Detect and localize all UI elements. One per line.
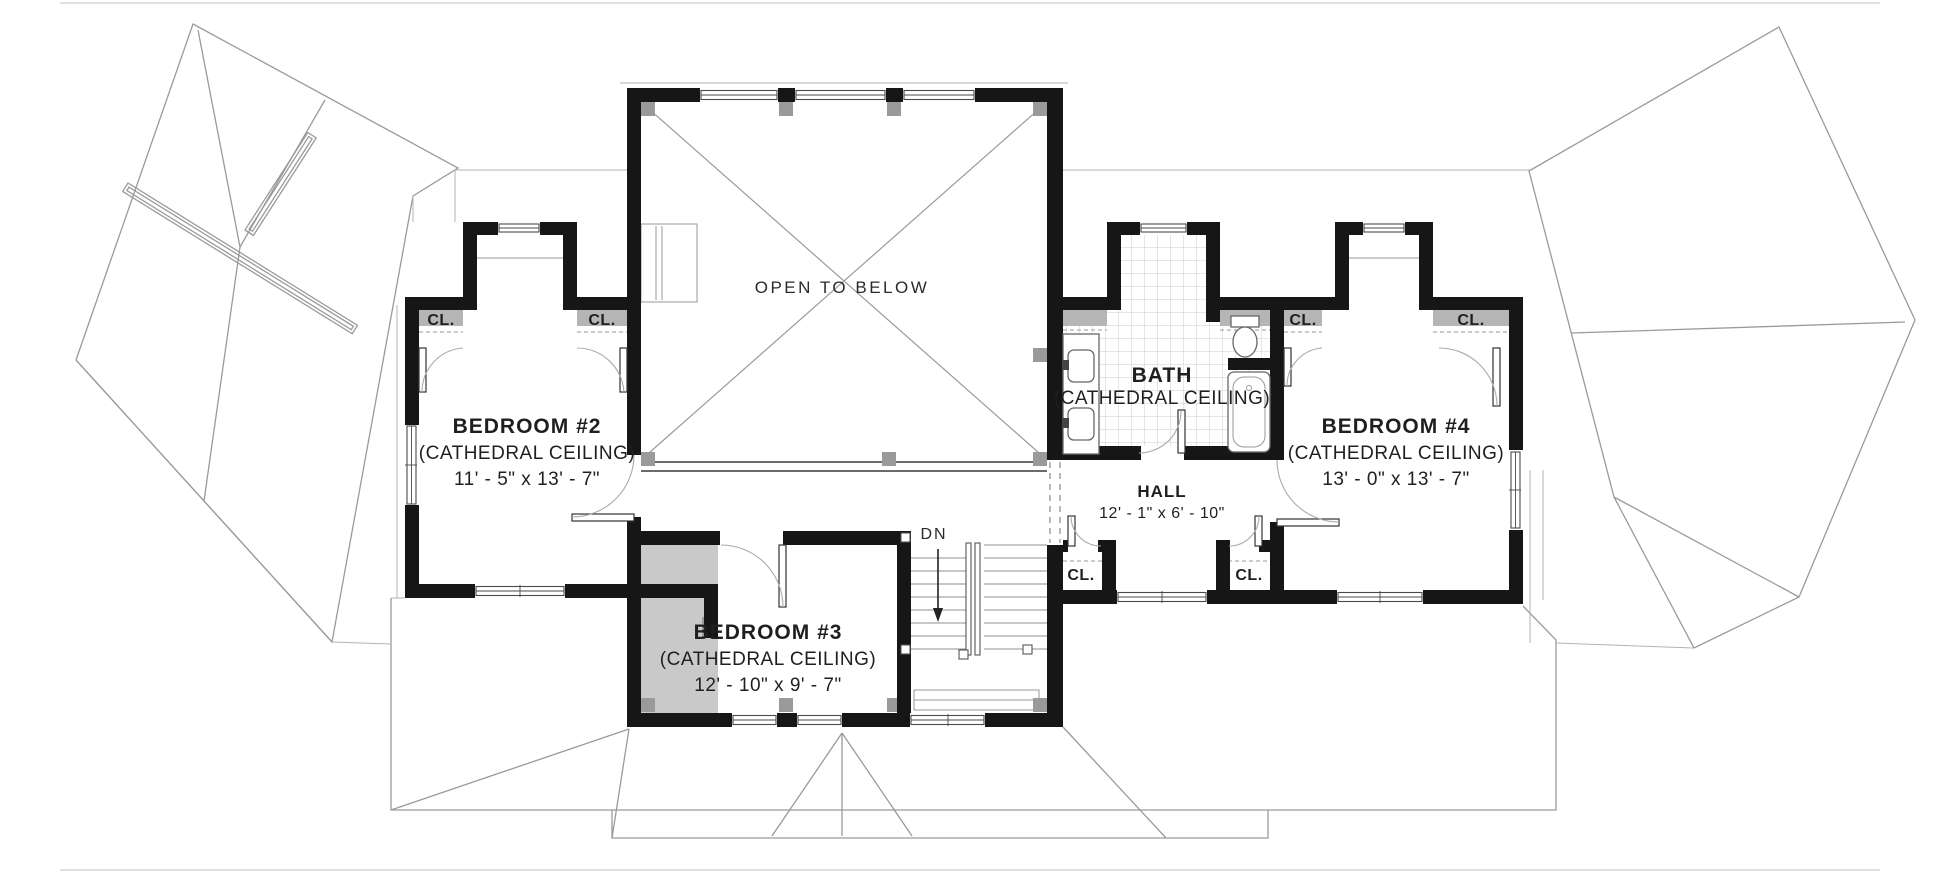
floor-plan-drawing: OPEN TO BELOW BEDROOM #2 (CATHEDRAL CEIL… [0, 0, 1946, 873]
skylight-icon [123, 183, 358, 334]
closet-label: CL. [1289, 312, 1316, 329]
bathtub [1228, 372, 1270, 452]
floor-plan-page: OPEN TO BELOW BEDROOM #2 (CATHEDRAL CEIL… [0, 0, 1946, 873]
bedroom2-name: BEDROOM #2 [453, 415, 602, 438]
hall-name: HALL [1137, 482, 1186, 501]
bedroom3-dimensions: 12' - 10" x 9' - 7" [694, 675, 841, 696]
closet-label: CL. [588, 312, 615, 329]
hall-dimensions: 12' - 1" x 6' - 10" [1099, 505, 1225, 522]
closet-label: CL. [427, 312, 454, 329]
bedroom4-ceiling: (CATHEDRAL CEILING) [1288, 443, 1504, 464]
bath-ceiling: (CATHEDRAL CEILING) [1054, 388, 1270, 409]
bedroom4-name: BEDROOM #4 [1322, 415, 1471, 438]
skylight-icon [245, 132, 316, 235]
closet-label: CL. [1067, 567, 1094, 584]
building-footprint [405, 88, 1523, 727]
bath-name: BATH [1132, 364, 1193, 387]
roof-left-wing [76, 24, 458, 642]
bedroom3-name: BEDROOM #3 [694, 621, 843, 644]
bedroom2-dimensions: 11' - 5" x 13' - 7" [454, 469, 600, 490]
bedroom3-ceiling: (CATHEDRAL CEILING) [660, 649, 876, 670]
open-to-below-label: OPEN TO BELOW [755, 278, 930, 297]
bedroom4-dimensions: 13' - 0" x 13' - 7" [1322, 469, 1469, 490]
down-label: DN [920, 526, 947, 543]
closet-label: CL. [1457, 312, 1484, 329]
bedroom2-ceiling: (CATHEDRAL CEILING) [419, 443, 635, 464]
closet-label: CL. [1235, 567, 1262, 584]
toilet [1231, 316, 1259, 357]
roof-right-wing [1529, 27, 1915, 648]
